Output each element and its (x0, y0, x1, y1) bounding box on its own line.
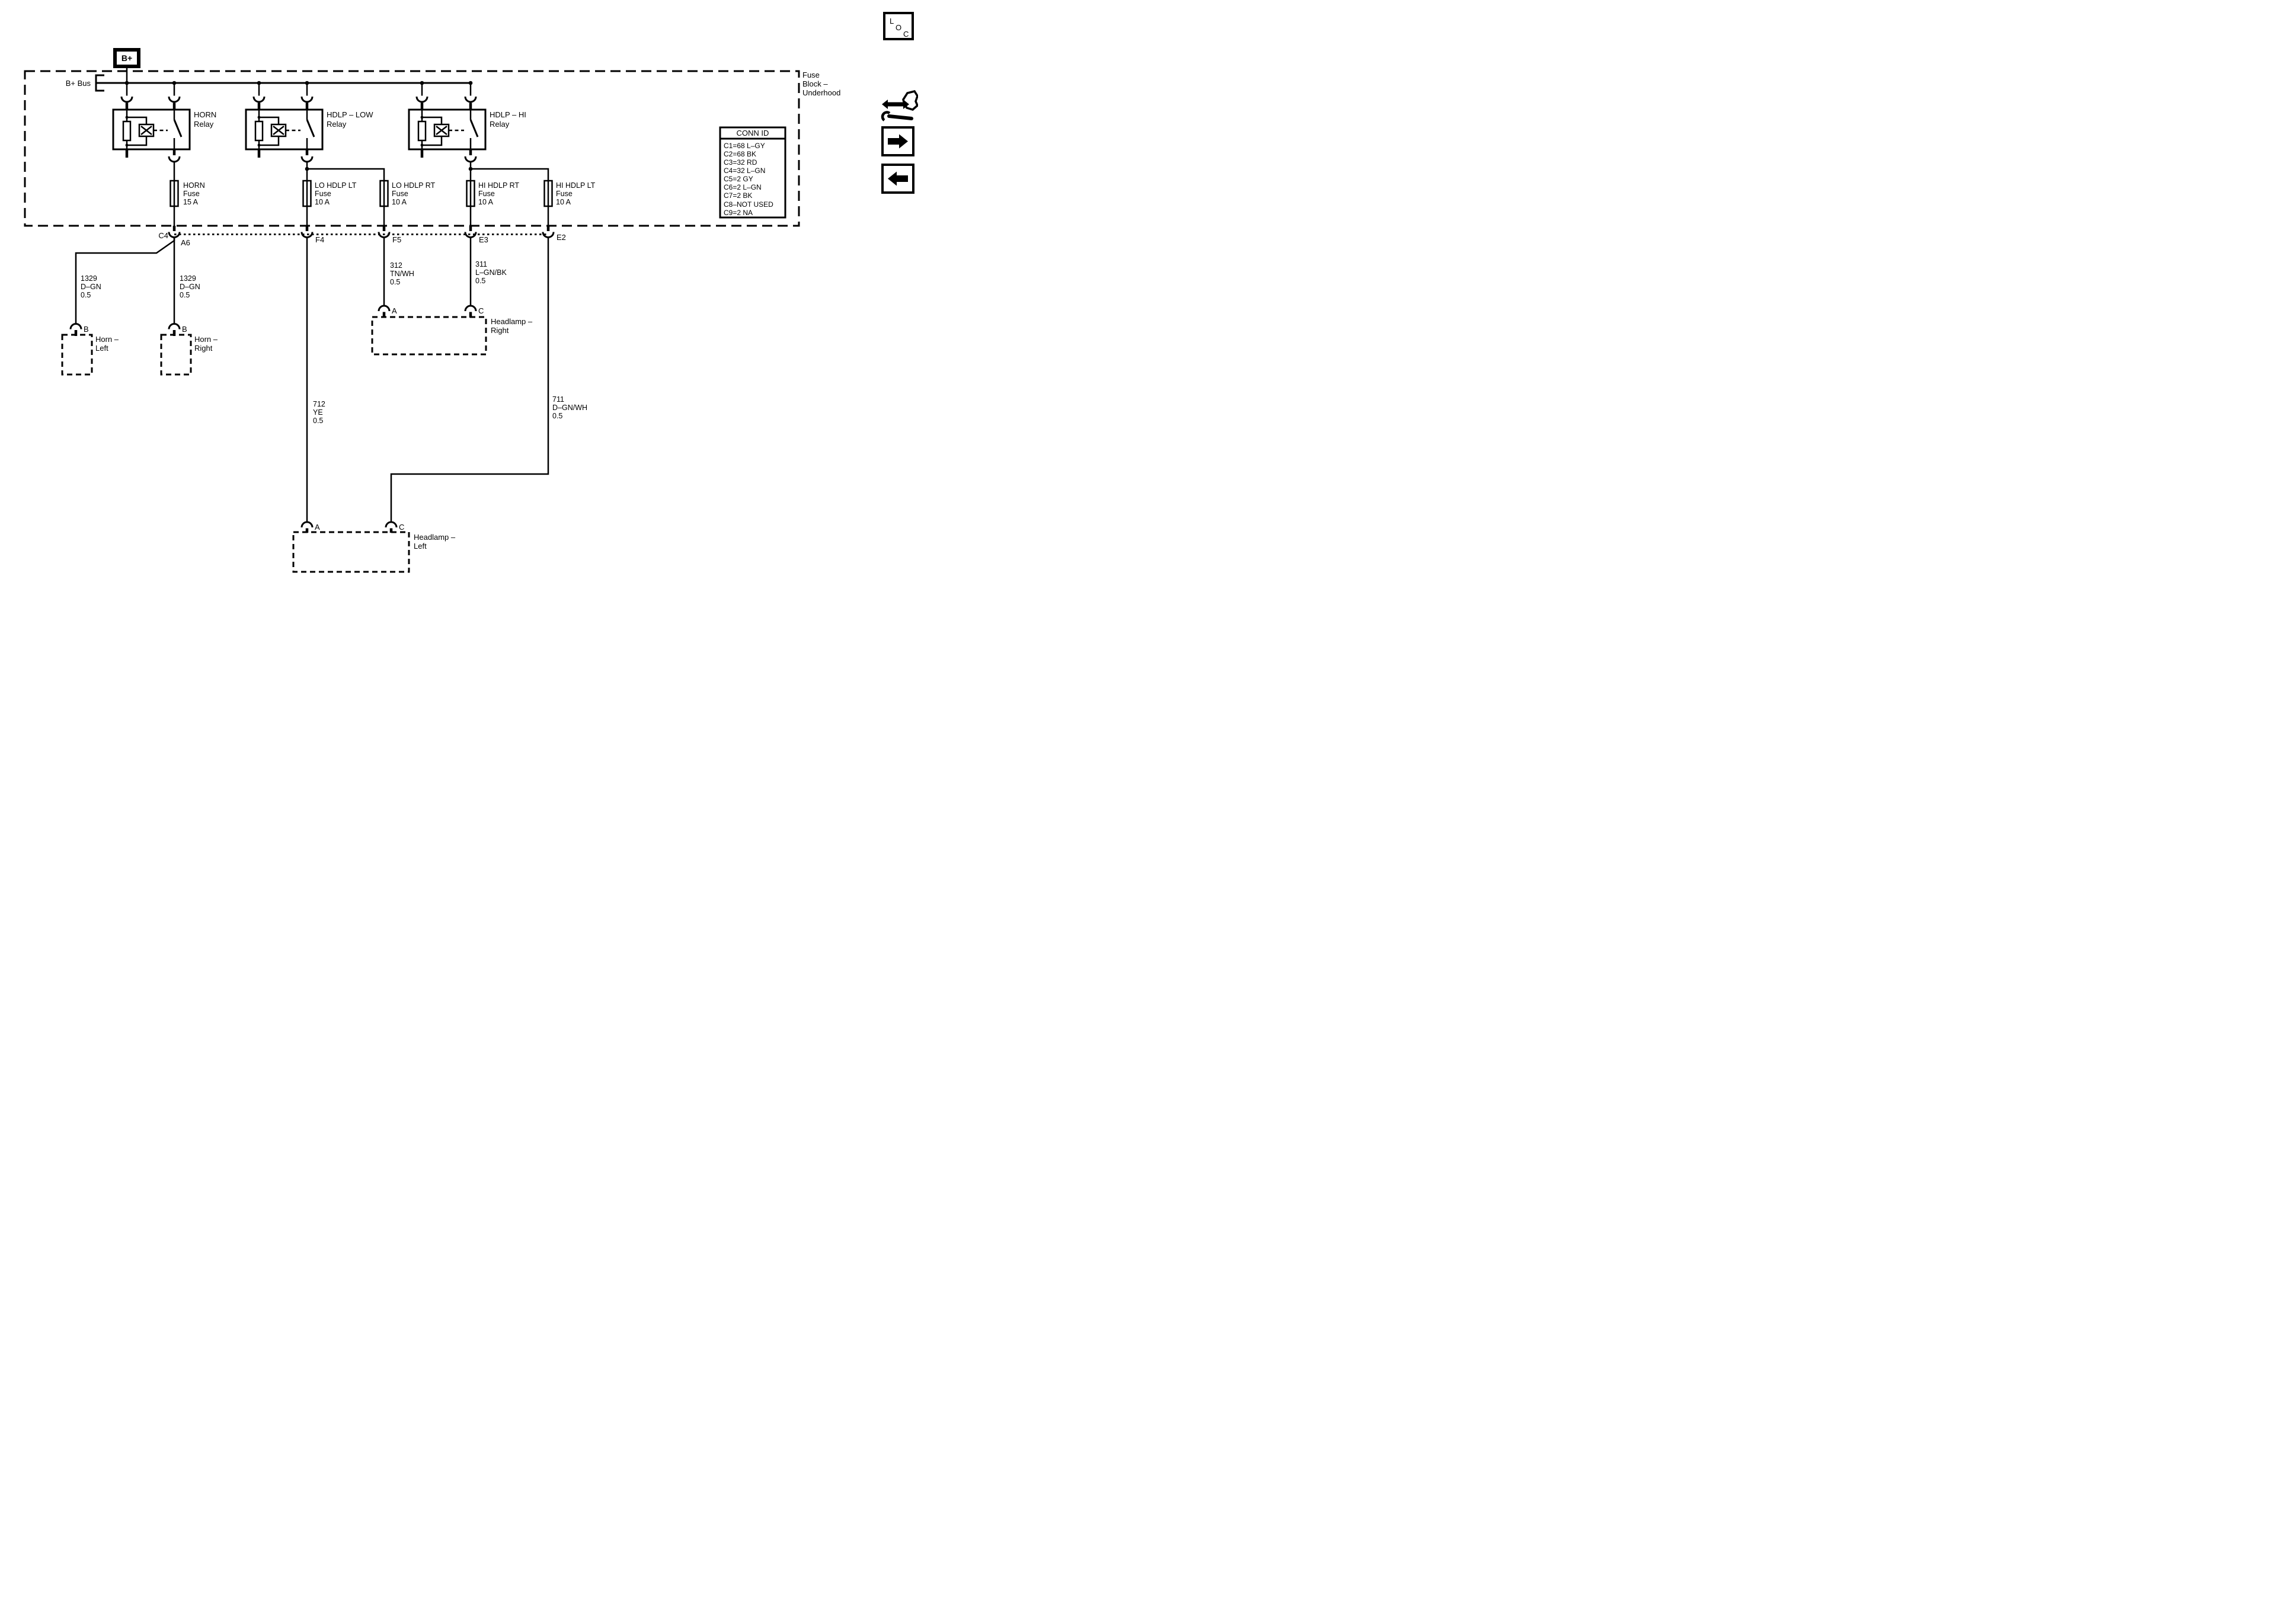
fuse-block-label-line3: Underhood (802, 88, 840, 97)
wire-color: YE (313, 408, 323, 417)
b-plus-terminal: B+ (115, 50, 139, 83)
horn-relay-label-line1: HORN (194, 110, 216, 119)
headlamp-right-pin-c-label: C (478, 306, 484, 315)
loc-letter-o: O (896, 23, 901, 32)
relay-output-wiring (169, 149, 548, 181)
conn-id-row: C6=2 L–GN (724, 183, 762, 191)
connector-e3-label: E3 (479, 235, 488, 244)
hi-hdlp-rt-fuse-type: Fuse (478, 190, 495, 198)
connector-cup-icon (543, 232, 554, 238)
lo-hdlp-lt-fuse-type: Fuse (315, 190, 331, 198)
hi-hdlp-lt-fuse-name: HI HDLP LT (556, 181, 596, 190)
conn-id-row: C9=2 NA (724, 209, 753, 217)
wrench-handle-icon (889, 116, 912, 119)
relay-coil-resistor-icon (255, 121, 263, 140)
relay-switch-blade-icon (471, 120, 478, 137)
connector-cup-icon (465, 156, 476, 162)
connector-cup-icon (465, 232, 476, 238)
conn-id-table: CONN ID C1=68 L–GY C2=68 BK C3=32 RD C4=… (720, 127, 785, 217)
wire-311-label: 311 L–GN/BK 0.5 (475, 260, 507, 285)
relay-switch-blade-icon (174, 120, 181, 137)
horn-left-label-line1: Horn – (95, 335, 119, 344)
hdlp-low-relay-label-line1: HDLP – LOW (327, 110, 373, 119)
loc-letter-c: C (903, 30, 909, 39)
wire-circuit: 712 (313, 400, 325, 408)
hi-hdlp-lt-fuse-rating: 10 A (556, 198, 571, 206)
previous-page-button[interactable] (882, 165, 913, 193)
component-pin-cap-icon (379, 306, 389, 311)
wire-gauge: 0.5 (313, 417, 323, 425)
wire-1329-right-label: 1329 D–GN 0.5 (180, 274, 200, 299)
hi-hdlp-rt-fuse: HI HDLP RT Fuse 10 A (467, 181, 520, 206)
connector-f5-label: F5 (392, 235, 401, 244)
wire-color: L–GN/BK (475, 268, 507, 277)
wiring-diagram-canvas: Fuse Block – Underhood B+ B+ Bus (0, 0, 918, 644)
conn-id-row: C7=2 BK (724, 191, 752, 200)
service-info-icon[interactable] (882, 91, 917, 120)
lo-hdlp-rt-fuse: LO HDLP RT Fuse 10 A (380, 181, 436, 206)
headlamp-left-component: A C Headlamp – Left (293, 522, 456, 572)
connector-cup-icon (465, 97, 476, 102)
conn-id-row: C8–NOT USED (724, 200, 773, 209)
relay-coil-resistor-icon (418, 121, 426, 140)
wire-color: D–GN/WH (552, 404, 587, 412)
wire-circuit: 312 (390, 261, 402, 270)
wire-color: TN/WH (390, 270, 414, 278)
component-pin-cap-icon (386, 522, 396, 527)
horn-fuse-name: HORN (183, 181, 205, 190)
headlamp-left-label-line2: Left (414, 542, 427, 550)
connector-cup-icon (302, 97, 312, 102)
connector-cup-icon (302, 156, 312, 162)
connector-cup-icon (169, 156, 180, 162)
headlamp-right-component: A C Headlamp – Right (372, 306, 533, 354)
wire-circuit: 1329 (180, 274, 196, 283)
hi-hdlp-lt-fuse: HI HDLP LT Fuse 10 A (545, 181, 596, 206)
headlamp-left-box (293, 532, 409, 572)
horn-left-label-line2: Left (95, 344, 108, 353)
hi-hdlp-lt-fuse-type: Fuse (556, 190, 573, 198)
horn-left-component: B Horn – Left (62, 324, 119, 375)
component-pin-cap-icon (169, 324, 180, 329)
conn-id-row: C3=32 RD (724, 158, 757, 167)
wire-711-label: 711 D–GN/WH 0.5 (552, 395, 587, 420)
relay-pin-drop (417, 83, 427, 110)
b-plus-label: B+ (121, 53, 132, 63)
wire-circuit: 1329 (81, 274, 97, 283)
lo-hdlp-lt-fuse-name: LO HDLP LT (315, 181, 357, 190)
horn-right-label-line2: Right (194, 344, 213, 353)
hdlp-low-relay: HDLP – LOW Relay (246, 110, 373, 158)
wiring-diagram-page: Fuse Block – Underhood B+ B+ Bus (0, 0, 918, 644)
conn-id-row: C2=68 BK (724, 150, 756, 158)
fuse-block-label: Fuse Block – Underhood (802, 71, 840, 97)
wire-circuit: 711 (552, 395, 564, 404)
headlamp-right-pin-a-label: A (392, 306, 397, 315)
double-arrow-icon (882, 100, 909, 109)
headlamp-right-label-line1: Headlamp – (491, 317, 533, 326)
wire-gauge: 0.5 (390, 278, 400, 286)
loc-letter-l: L (890, 17, 894, 25)
connector-a6-label: A6 (181, 238, 190, 247)
component-pin-cap-icon (71, 324, 81, 329)
headlamp-left-pin-c-label: C (399, 523, 404, 532)
horn-fuse: HORN Fuse 15 A (171, 181, 205, 206)
hdlp-low-relay-label-line2: Relay (327, 120, 347, 129)
connector-cup-icon (169, 97, 180, 102)
harness-wires: 1329 D–GN 0.5 1329 D–GN 0.5 312 TN/WH 0.… (76, 238, 587, 522)
headlamp-left-pin-a-label: A (315, 523, 320, 532)
wire-circuit: 311 (475, 260, 487, 268)
wire-312-label: 312 TN/WH 0.5 (390, 261, 414, 286)
horn-relay-label-line2: Relay (194, 120, 214, 129)
next-page-button[interactable] (882, 127, 913, 155)
connector-e2: E2 (543, 206, 566, 242)
hdlp-hi-relay-label-line2: Relay (490, 120, 510, 129)
horn-fuse-type: Fuse (183, 190, 200, 198)
horn-left-pin-label: B (84, 325, 89, 334)
conn-id-row: C5=2 GY (724, 175, 753, 183)
hdlp-hi-relay-label-line1: HDLP – HI (490, 110, 526, 119)
horn-fuse-rating: 15 A (183, 198, 199, 206)
conn-id-title: CONN ID (737, 129, 769, 137)
lo-hdlp-rt-fuse-rating: 10 A (392, 198, 407, 206)
connector-f4-label: F4 (315, 235, 324, 244)
connector-c4-label: C4 (158, 231, 168, 240)
connector-cup-icon (121, 97, 132, 102)
hi-hdlp-rt-fuse-rating: 10 A (478, 198, 494, 206)
relay-pin-drop (121, 83, 132, 110)
horn-right-box (161, 335, 191, 375)
relay-pin-drop (302, 83, 312, 110)
relay-pin-drop (169, 83, 180, 110)
conn-id-row: C4=32 L–GN (724, 167, 765, 175)
wire-711 (391, 238, 548, 522)
wire-gauge: 0.5 (81, 291, 91, 299)
horn-right-component: B Horn – Right (161, 324, 218, 375)
fuse-block-label-line1: Fuse (802, 71, 820, 79)
hdlp-hi-relay: HDLP – HI Relay (409, 110, 526, 158)
horn-left-box (62, 335, 92, 375)
relay-pin-drop (465, 83, 476, 110)
fuse-block-label-line2: Block – (802, 79, 828, 88)
relay-switch-blade-icon (307, 120, 314, 137)
wire-gauge: 0.5 (180, 291, 190, 299)
horn-right-label-line1: Horn – (194, 335, 218, 344)
wire-color: D–GN (180, 283, 200, 291)
relay-feed-drops (121, 83, 476, 110)
lo-hdlp-rt-fuse-type: Fuse (392, 190, 408, 198)
headlamp-right-box (372, 317, 486, 354)
hi-hdlp-rt-fuse-name: HI HDLP RT (478, 181, 519, 190)
component-pin-cap-icon (465, 306, 476, 311)
horn-relay: HORN Relay (113, 110, 216, 158)
connector-cup-icon (417, 97, 427, 102)
lo-hdlp-lt-fuse-rating: 10 A (315, 198, 330, 206)
conn-id-row: C1=68 L–GY (724, 142, 765, 150)
connector-cup-icon (254, 97, 264, 102)
bus-label: B+ Bus (66, 79, 91, 88)
connector-e2-label: E2 (557, 233, 566, 242)
horn-right-pin-label: B (182, 325, 187, 334)
relay-pin-drop (254, 83, 264, 110)
lo-hdlp-rt-fuse-name: LO HDLP RT (392, 181, 436, 190)
headlamp-left-label-line1: Headlamp – (414, 533, 456, 542)
headlamp-right-label-line2: Right (491, 326, 509, 335)
wire-color: D–GN (81, 283, 101, 291)
wire-gauge: 0.5 (552, 412, 562, 420)
component-pin-cap-icon (302, 522, 312, 527)
wire-712-label: 712 YE 0.5 (313, 400, 325, 425)
loc-tag[interactable]: L O C (884, 13, 913, 39)
wire-1329-left-label: 1329 D–GN 0.5 (81, 274, 101, 299)
relay-coil-resistor-icon (123, 121, 130, 140)
lo-hdlp-lt-fuse: LO HDLP LT Fuse 10 A (303, 181, 357, 206)
wire-gauge: 0.5 (475, 277, 485, 285)
